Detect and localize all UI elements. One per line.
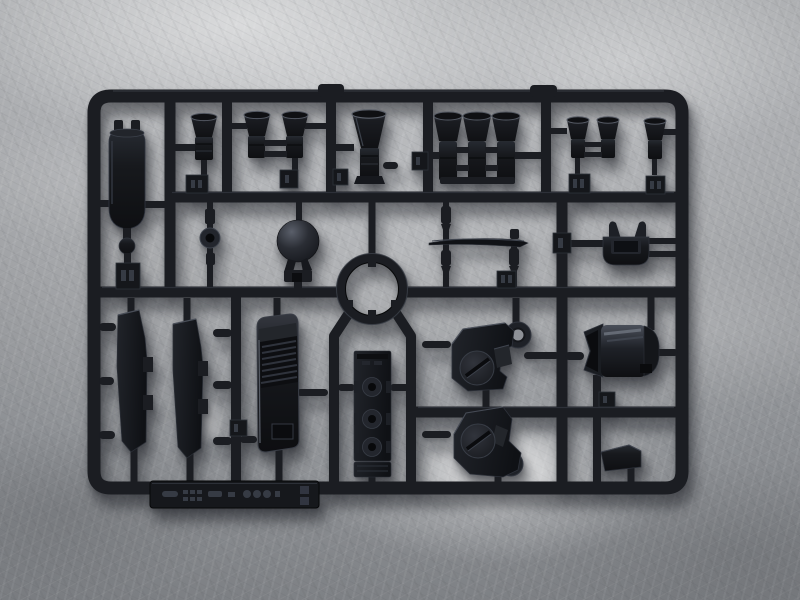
molded-parts bbox=[109, 110, 666, 508]
part-number-tag bbox=[599, 392, 615, 407]
part-small-paired-thrusters bbox=[567, 117, 619, 174]
part-nameplate-bar bbox=[150, 481, 319, 508]
part-triple-thruster-bank bbox=[434, 112, 520, 184]
photo-scene: Black plastic model-kit parts sprue (inj… bbox=[0, 0, 800, 600]
part-cylindrical-housing bbox=[584, 324, 659, 377]
part-hinge-strip-with-discs bbox=[354, 351, 391, 477]
part-number-tag bbox=[116, 263, 140, 289]
part-paired-thruster-bells bbox=[244, 111, 308, 171]
part-collar-ring bbox=[337, 254, 408, 325]
part-two-prong-clamp bbox=[603, 221, 649, 265]
part-number-tag bbox=[412, 152, 428, 170]
part-louvered-vent-grille bbox=[257, 314, 299, 452]
part-fuel-tank-cylinder bbox=[109, 120, 145, 264]
sprue-runner-photo: Black plastic model-kit parts sprue (inj… bbox=[0, 0, 800, 600]
part-thin-horizontal-blade bbox=[429, 206, 528, 280]
part-number-tag bbox=[280, 170, 298, 188]
part-number-tag bbox=[553, 233, 571, 253]
part-number-tag bbox=[333, 169, 348, 185]
part-dome-sphere bbox=[277, 220, 319, 289]
part-number-tag bbox=[646, 176, 665, 194]
part-number-tag bbox=[569, 174, 590, 193]
part-wedge-foot bbox=[601, 445, 641, 471]
part-number-tag bbox=[230, 420, 247, 436]
part-skirt-armor-panel-right bbox=[173, 319, 208, 458]
part-number-tag bbox=[497, 271, 516, 288]
part-skirt-armor-panel-left bbox=[117, 310, 153, 452]
part-single-small-thruster bbox=[644, 118, 666, 175]
part-number-tag bbox=[186, 175, 208, 193]
part-ball-joint-washer bbox=[200, 209, 220, 265]
part-large-thruster-bell bbox=[352, 110, 386, 184]
part-disc-bracket-upper bbox=[452, 322, 531, 391]
